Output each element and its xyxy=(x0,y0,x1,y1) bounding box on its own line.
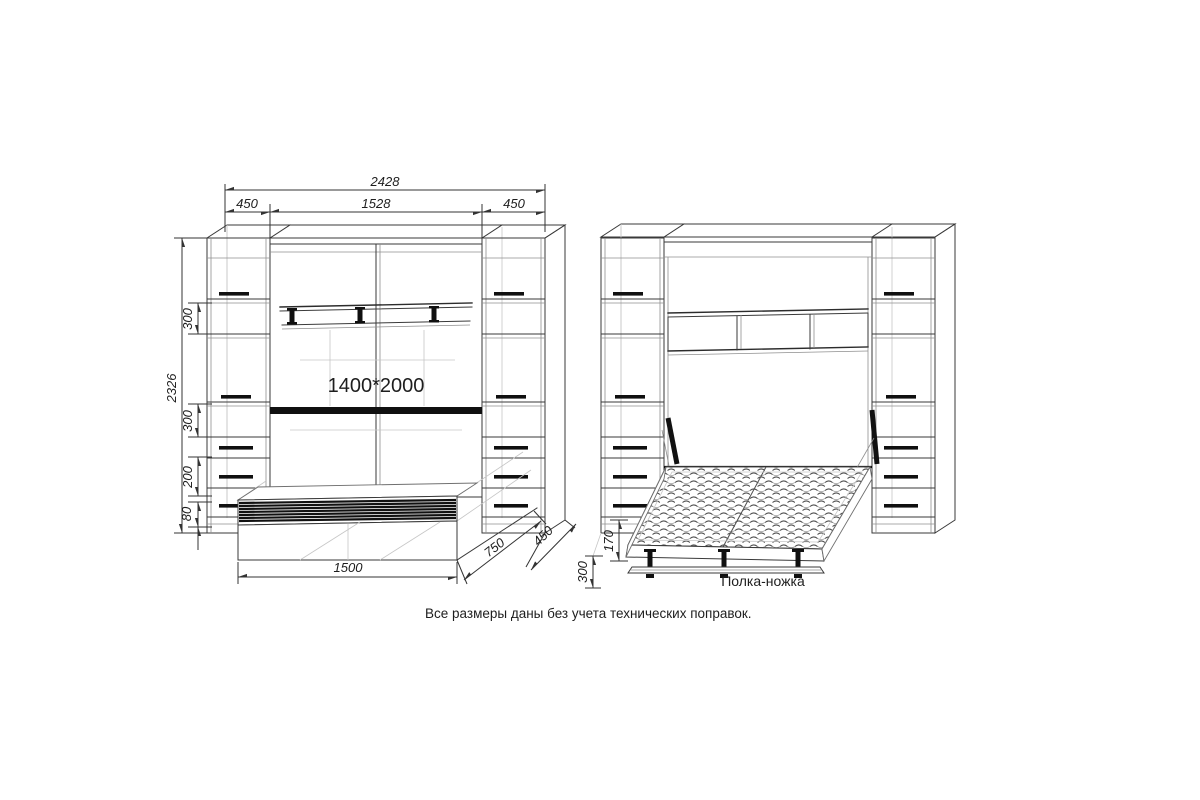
note-text: Все размеры даны без учета технических п… xyxy=(425,606,752,621)
dim-lower-shelf-gap: 300 xyxy=(180,409,195,431)
dim-plinth-height: 80 xyxy=(179,506,194,521)
dimension-lines: 170 300 xyxy=(575,520,628,588)
cabinet xyxy=(872,227,935,533)
dim-total-width: 2428 xyxy=(370,174,401,189)
top-face xyxy=(207,225,565,238)
open-view-drawing: Полка-ножка 170 300 xyxy=(575,224,955,589)
dim-center-width: 1528 xyxy=(362,196,392,211)
blueprint-page: 1400*2000 xyxy=(0,0,1200,800)
side-face xyxy=(545,225,565,533)
shelf-bracket xyxy=(429,306,439,323)
dim-bed-box-width: 1500 xyxy=(334,560,364,575)
dim-left-cabinet-width: 450 xyxy=(236,196,258,211)
open-bed: Полка-ножка xyxy=(626,467,872,589)
bed-size-label: 1400*2000 xyxy=(328,375,425,397)
technical-drawing-canvas: 1400*2000 xyxy=(0,0,1200,800)
leg-shelf-label: Полка-ножка xyxy=(721,573,805,589)
dim-bed-frame-height: 170 xyxy=(601,529,616,551)
shelf-bracket xyxy=(287,308,297,325)
closed-view-drawing: 1400*2000 xyxy=(164,174,576,584)
dim-upper-shelf-gap: 300 xyxy=(180,307,195,329)
top-face xyxy=(601,224,955,237)
dim-bed-box-depth: 750 xyxy=(481,534,508,560)
cabinet xyxy=(482,227,545,533)
dim-drawer-section: 200 xyxy=(180,465,195,488)
left-lift-strut xyxy=(668,418,677,464)
center-doors xyxy=(270,244,482,497)
dim-total-height: 2326 xyxy=(164,373,179,404)
dim-leg-shelf-height: 300 xyxy=(575,560,590,582)
cabinet xyxy=(601,227,664,533)
dim-right-cabinet-width: 450 xyxy=(503,196,525,211)
shelf-bracket xyxy=(355,307,365,324)
side-face xyxy=(935,224,955,533)
bed-fold-band xyxy=(270,407,482,414)
niche-shelf-unit xyxy=(668,309,868,355)
